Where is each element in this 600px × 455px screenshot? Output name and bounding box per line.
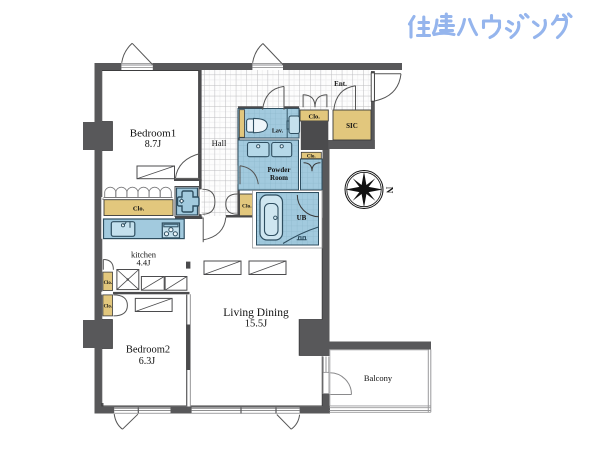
svg-text:SIC: SIC	[346, 122, 358, 130]
svg-text:Lav.: Lav.	[272, 129, 284, 135]
svg-text:Ent.: Ent.	[334, 80, 347, 88]
svg-text:15.5J: 15.5J	[245, 319, 267, 330]
svg-text:Clo.: Clo.	[104, 304, 112, 309]
svg-text:4.4J: 4.4J	[137, 258, 152, 268]
svg-text:UB: UB	[297, 214, 307, 222]
svg-text:Living Dining: Living Dining	[223, 307, 289, 319]
svg-text:Clo.: Clo.	[309, 113, 321, 120]
svg-text:Bedroom2: Bedroom2	[126, 345, 170, 356]
svg-text:Clo.: Clo.	[133, 206, 145, 213]
svg-text:Hall: Hall	[212, 138, 227, 148]
svg-text:N: N	[384, 187, 394, 194]
svg-text:Clo.: Clo.	[104, 281, 112, 286]
svg-text:Bedroom1: Bedroom1	[130, 128, 176, 140]
svg-text:Balcony: Balcony	[364, 373, 393, 383]
svg-text:Clo.: Clo.	[307, 154, 317, 159]
svg-text:6.3J: 6.3J	[139, 356, 156, 367]
svg-text:Clo.: Clo.	[242, 204, 252, 210]
svg-text:Room: Room	[270, 174, 288, 182]
svg-text:8.7J: 8.7J	[145, 139, 162, 150]
svg-text:Powder: Powder	[268, 166, 291, 174]
